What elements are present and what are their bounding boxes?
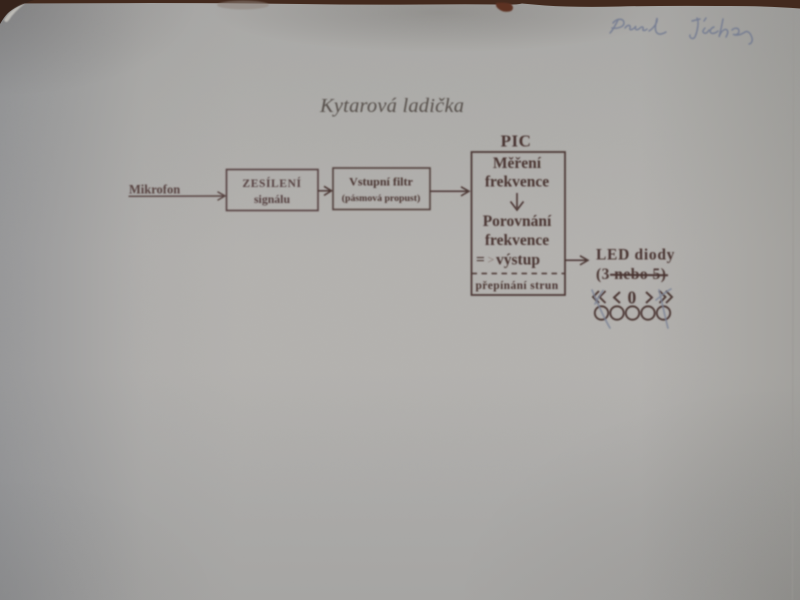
svg-text:Měření: Měření (493, 155, 542, 172)
svg-text:PIC: PIC (501, 132, 532, 151)
svg-text:frekvence: frekvence (485, 174, 549, 191)
svg-text:Mikrofon: Mikrofon (129, 183, 180, 197)
svg-text:>: > (488, 253, 495, 267)
svg-text:frekvence: frekvence (485, 232, 549, 249)
svg-text:výstup: výstup (496, 252, 540, 269)
svg-text:Porovnání: Porovnání (483, 213, 552, 230)
svg-text:=: = (476, 252, 485, 269)
svg-text:Kytarová ladička: Kytarová ladička (319, 95, 464, 117)
svg-text:přepínání strun: přepínání strun (475, 280, 558, 292)
svg-text:(pásmová propust): (pásmová propust) (342, 193, 420, 204)
svg-text:ZESÍLENÍ: ZESÍLENÍ (242, 176, 301, 190)
svg-text:Vstupní filtr: Vstupní filtr (349, 175, 413, 189)
svg-text:LED diody: LED diody (596, 247, 675, 264)
svg-text:0: 0 (628, 288, 637, 308)
svg-text:signálu: signálu (254, 192, 291, 206)
